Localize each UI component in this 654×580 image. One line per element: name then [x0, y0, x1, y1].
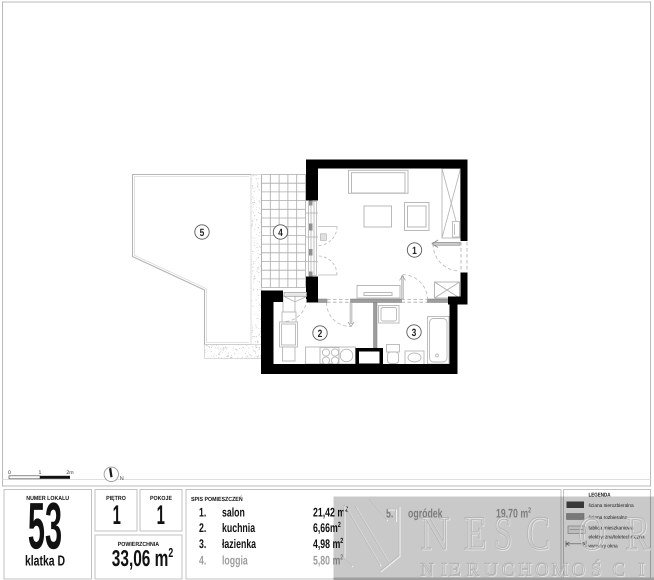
- svg-text:C: C: [502, 560, 515, 580]
- svg-text:loggia: loggia: [222, 554, 248, 568]
- svg-text:3.: 3.: [199, 537, 206, 551]
- svg-text:N: N: [120, 476, 124, 482]
- svg-text:I: I: [441, 560, 447, 580]
- svg-text:5: 5: [200, 227, 205, 239]
- svg-text:Ś: Ś: [591, 559, 602, 580]
- svg-text:R: R: [467, 560, 480, 580]
- svg-text:N: N: [420, 507, 449, 560]
- svg-text:1: 1: [113, 500, 121, 530]
- svg-text:53: 53: [28, 489, 62, 563]
- svg-text:M: M: [552, 560, 569, 580]
- svg-text:E: E: [449, 560, 461, 580]
- svg-text:U: U: [484, 560, 498, 580]
- svg-text:SPIS POMIESZCZEŃ: SPIS POMIESZCZEŃ: [191, 495, 243, 503]
- svg-text:C: C: [612, 560, 625, 580]
- svg-text:kuchnia: kuchnia: [222, 521, 256, 535]
- svg-text:4: 4: [278, 227, 283, 239]
- svg-text:1: 1: [412, 245, 417, 257]
- svg-text:3: 3: [412, 327, 417, 339]
- svg-text:N: N: [420, 560, 434, 580]
- svg-text:E: E: [464, 507, 487, 560]
- svg-text:O: O: [572, 560, 586, 580]
- svg-text:1: 1: [39, 470, 42, 476]
- svg-text:2: 2: [318, 328, 323, 340]
- svg-text:H: H: [518, 560, 532, 580]
- svg-text:salon: salon: [222, 506, 245, 520]
- svg-text:I: I: [638, 560, 644, 580]
- svg-text:1: 1: [157, 500, 165, 530]
- svg-text:O: O: [535, 560, 549, 580]
- svg-text:2.: 2.: [199, 521, 206, 535]
- svg-text:klatka D: klatka D: [25, 554, 65, 570]
- svg-text:33,06 m2: 33,06 m2: [112, 545, 173, 571]
- svg-text:C: C: [526, 507, 550, 560]
- svg-text:łazienka: łazienka: [222, 537, 257, 551]
- svg-text:1.: 1.: [199, 506, 206, 520]
- svg-text:2m: 2m: [66, 470, 73, 476]
- svg-text:0: 0: [8, 470, 11, 476]
- svg-text:4.: 4.: [199, 554, 206, 568]
- svg-text:S: S: [494, 507, 512, 560]
- svg-text:O: O: [578, 507, 605, 560]
- svg-text:R: R: [625, 507, 650, 560]
